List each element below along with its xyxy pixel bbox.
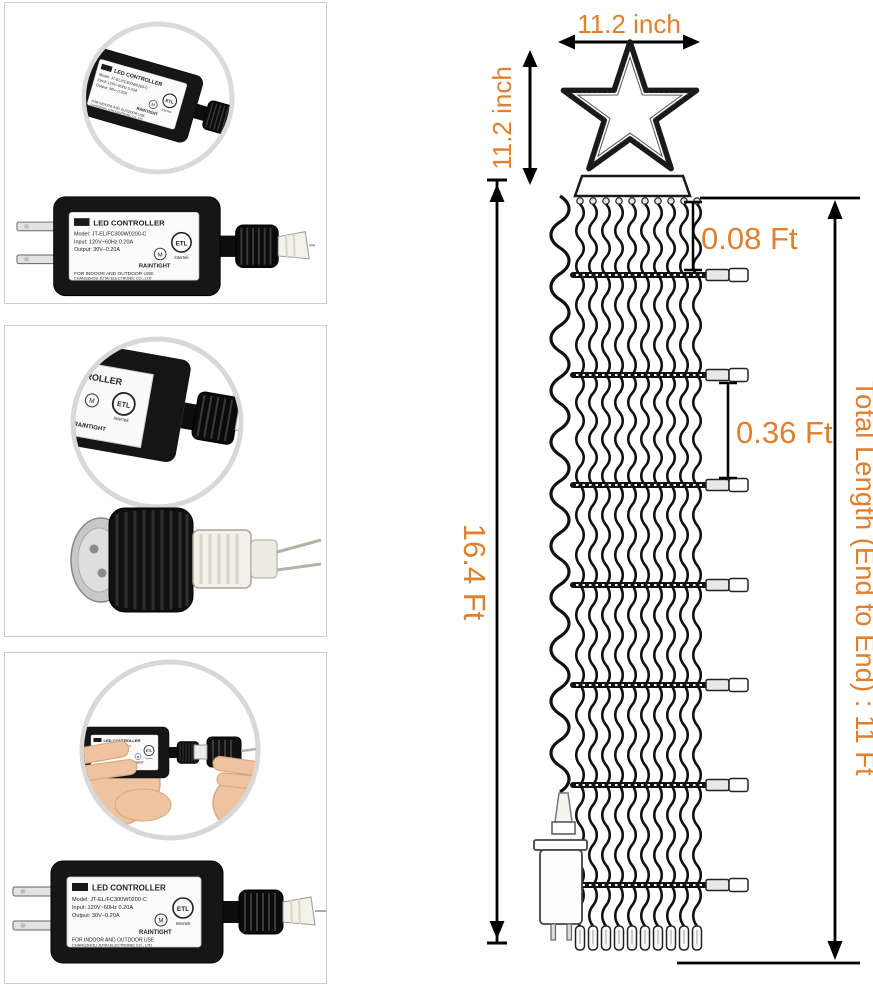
row-connector-icon: [706, 370, 729, 381]
panel-connector-closeup: TROLLER M ETL Intertek RAINTIGHT: [4, 325, 327, 637]
row-connector-icon: [706, 780, 729, 791]
power-cord-and-plug: [534, 196, 587, 940]
strand-clip: [616, 198, 622, 204]
row-connector-icon: [706, 580, 729, 591]
row-gap-dimension: [719, 383, 737, 478]
curtain-strands: [576, 204, 701, 926]
strand-clip: [629, 198, 635, 204]
star-icon: [563, 42, 696, 196]
controller-overview-illustration: LED CONTROLLER Model: JT-EL/FC300W0200-C…: [5, 3, 326, 303]
strand-clips: [577, 198, 700, 204]
row-connectors: [706, 269, 748, 892]
total-length-dimension: [677, 198, 860, 963]
height-dimension: [523, 50, 538, 185]
strand-clip: [642, 198, 648, 204]
twist-lock-connector-icon: [71, 508, 321, 612]
assembly-hands-illustration: [5, 653, 326, 983]
male-connector-icon: [555, 793, 572, 822]
row-connector-icon: [706, 880, 729, 891]
row-connector-icon: [706, 680, 729, 691]
panel-controller-overview: LED CONTROLLER Model: JT-EL/FC300W0200-C…: [4, 2, 327, 304]
star-height-label: 11.2 inch: [487, 66, 517, 170]
connector-closeup-illustration: TROLLER M ETL Intertek RAINTIGHT: [5, 326, 326, 636]
panel-assembly-hands: [4, 652, 327, 984]
wire-length-label: 16.4 Ft: [457, 524, 492, 621]
row-connector-icon: [706, 270, 729, 281]
star-width-label: 11.2 inch: [577, 9, 681, 39]
strand-clip: [668, 198, 674, 204]
dimension-diagram: 11.2 inch 11.2 inch: [430, 0, 873, 984]
strand-clip: [577, 198, 583, 204]
strand-clip: [655, 198, 661, 204]
product-dimension-image: LED CONTROLLER Model: JT-EL/FC300W0200-C…: [0, 0, 873, 984]
controller-horizontal: [17, 197, 315, 296]
light-curtain: [573, 198, 748, 950]
star-base: [575, 176, 690, 196]
total-length-label: Total Length (End to End) : 11 Ft: [850, 380, 873, 776]
zigzag-cord: [551, 196, 569, 792]
controller-horizontal: [13, 861, 321, 963]
strand-clip: [590, 198, 596, 204]
first-drop-label: 0.08 Ft: [701, 221, 798, 256]
row-connector-icon: [706, 480, 729, 491]
plug-icon: [540, 850, 582, 924]
strand-clip: [603, 198, 609, 204]
row-gap-label: 0.36 Ft: [736, 415, 833, 450]
plug-flange: [534, 840, 587, 850]
bulb-tips: [576, 926, 702, 950]
